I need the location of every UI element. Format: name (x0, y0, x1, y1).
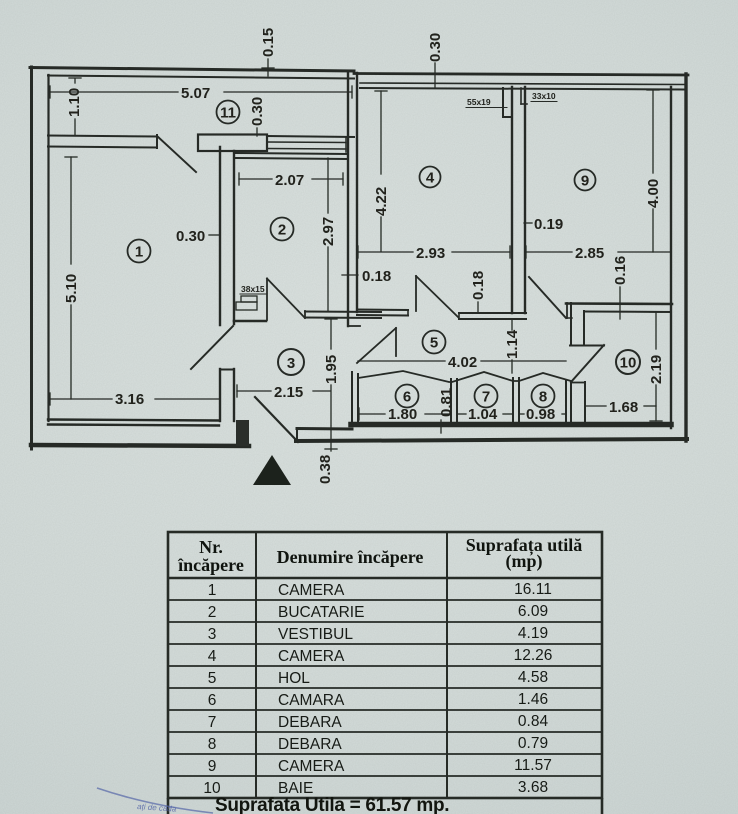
svg-text:0.79: 0.79 (518, 735, 548, 752)
svg-text:încăpere: încăpere (177, 555, 244, 575)
svg-text:HOL: HOL (278, 670, 310, 687)
svg-text:1: 1 (208, 582, 217, 599)
svg-text:1: 1 (135, 244, 143, 261)
svg-text:VESTIBUL: VESTIBUL (278, 626, 353, 643)
svg-text:12.26: 12.26 (514, 647, 553, 664)
svg-text:0.30: 0.30 (427, 33, 444, 62)
svg-text:BUCATARIE: BUCATARIE (278, 604, 364, 621)
svg-text:1.10: 1.10 (66, 88, 83, 117)
svg-text:5: 5 (208, 670, 217, 687)
svg-text:CAMARA: CAMARA (278, 692, 345, 709)
svg-text:1.04: 1.04 (468, 406, 498, 423)
svg-text:2.97: 2.97 (320, 217, 337, 246)
svg-text:Denumire încăpere: Denumire încăpere (277, 547, 424, 567)
svg-text:2.19: 2.19 (648, 355, 665, 384)
svg-text:11: 11 (220, 105, 236, 122)
svg-text:6: 6 (403, 389, 411, 406)
svg-text:3: 3 (287, 355, 295, 372)
svg-text:5: 5 (430, 335, 438, 352)
svg-text:2: 2 (278, 222, 286, 239)
svg-text:16.11: 16.11 (514, 581, 552, 598)
svg-text:33x10: 33x10 (532, 91, 556, 101)
svg-text:6: 6 (208, 692, 217, 709)
svg-text:3: 3 (208, 626, 217, 643)
svg-text:1.46: 1.46 (518, 691, 548, 708)
svg-text:0.30: 0.30 (249, 97, 266, 126)
svg-text:4.22: 4.22 (373, 187, 390, 216)
svg-text:DEBARA: DEBARA (278, 736, 342, 753)
svg-text:2: 2 (208, 604, 217, 621)
svg-text:10: 10 (620, 355, 637, 372)
svg-text:0.19: 0.19 (534, 216, 563, 233)
svg-text:0.18: 0.18 (470, 271, 487, 300)
svg-text:1.14: 1.14 (504, 329, 521, 359)
svg-text:0.38: 0.38 (317, 455, 334, 484)
svg-text:2.15: 2.15 (274, 384, 303, 401)
svg-text:Nr.: Nr. (199, 537, 223, 557)
svg-text:4.02: 4.02 (448, 354, 477, 371)
svg-text:0.81: 0.81 (438, 388, 455, 417)
svg-text:0.98: 0.98 (526, 406, 555, 423)
svg-text:4.19: 4.19 (518, 625, 548, 642)
svg-text:4.00: 4.00 (645, 179, 662, 208)
svg-text:(mp): (mp) (506, 551, 543, 572)
svg-text:CAMERA: CAMERA (278, 758, 345, 775)
svg-text:11.57: 11.57 (514, 757, 552, 774)
svg-text:8: 8 (208, 736, 217, 753)
svg-text:7: 7 (482, 389, 490, 406)
svg-text:0.16: 0.16 (612, 256, 629, 285)
svg-text:DEBARA: DEBARA (278, 714, 342, 731)
svg-text:6.09: 6.09 (518, 603, 548, 620)
svg-text:7: 7 (208, 714, 217, 731)
svg-text:9: 9 (581, 173, 589, 190)
svg-text:4: 4 (208, 648, 217, 665)
svg-text:0.84: 0.84 (518, 713, 549, 730)
svg-text:3.68: 3.68 (518, 779, 548, 796)
svg-text:2.07: 2.07 (275, 172, 304, 189)
svg-text:38x15: 38x15 (241, 284, 265, 294)
svg-text:2.85: 2.85 (575, 245, 604, 262)
svg-text:2.93: 2.93 (416, 245, 445, 262)
svg-text:4.58: 4.58 (518, 669, 548, 686)
svg-text:5.10: 5.10 (63, 274, 80, 303)
svg-text:4: 4 (426, 170, 435, 187)
svg-text:5.07: 5.07 (181, 85, 210, 102)
svg-text:55x19: 55x19 (467, 97, 491, 107)
svg-text:3.16: 3.16 (115, 391, 144, 408)
svg-text:0.15: 0.15 (260, 28, 277, 57)
svg-text:1.80: 1.80 (388, 406, 417, 423)
svg-text:8: 8 (539, 389, 547, 406)
svg-text:CAMERA: CAMERA (278, 582, 345, 599)
svg-text:1.68: 1.68 (609, 399, 638, 416)
svg-text:1.95: 1.95 (323, 355, 340, 384)
svg-text:0.18: 0.18 (362, 268, 391, 285)
svg-text:9: 9 (208, 758, 217, 775)
svg-text:0.30: 0.30 (176, 228, 205, 245)
svg-text:CAMERA: CAMERA (278, 648, 345, 665)
svg-text:Suprafata Utila = 61.57 mp.: Suprafata Utila = 61.57 mp. (215, 795, 449, 814)
